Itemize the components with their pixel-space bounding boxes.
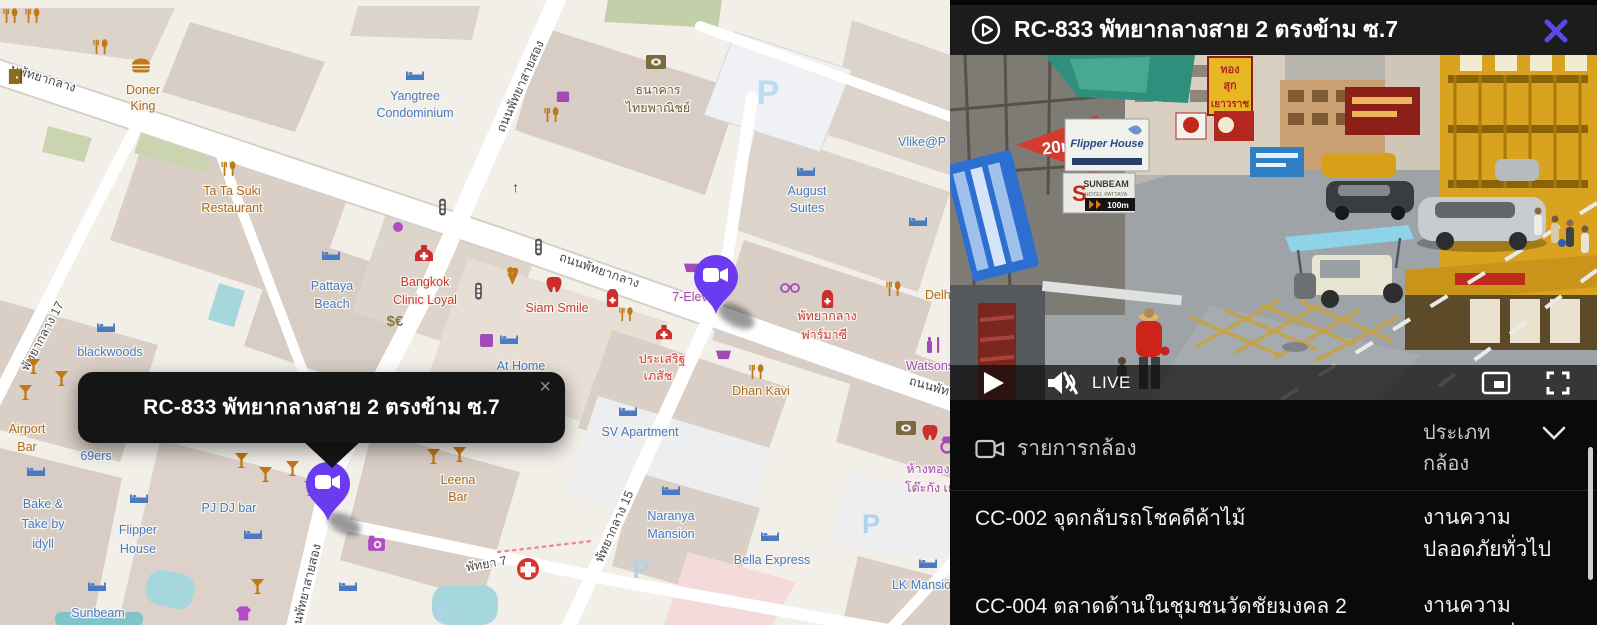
svg-text:สุก: สุก bbox=[1223, 80, 1237, 93]
svg-text:Bella Express: Bella Express bbox=[734, 553, 810, 567]
traffic-light-icon bbox=[535, 239, 542, 256]
chevron-down-icon[interactable] bbox=[1541, 424, 1567, 442]
svg-text:Flipper House: Flipper House bbox=[1070, 138, 1143, 150]
vehicle-car bbox=[1495, 159, 1539, 181]
svg-text:HOTEL PATTAYA: HOTEL PATTAYA bbox=[1085, 192, 1128, 198]
popup-close-icon[interactable]: × bbox=[539, 377, 551, 397]
shop-icon bbox=[480, 334, 493, 347]
svg-text:Doner: Doner bbox=[126, 83, 160, 97]
svg-text:Beach: Beach bbox=[314, 297, 349, 311]
svg-text:Condominium: Condominium bbox=[376, 106, 453, 120]
pharmacy-icon bbox=[607, 289, 618, 307]
mute-button[interactable] bbox=[1044, 369, 1078, 397]
svg-text:เภสัช: เภสัช bbox=[644, 369, 673, 383]
play-circle-icon bbox=[970, 14, 1002, 46]
svg-text:ธนาคาร: ธนาคาร bbox=[635, 83, 681, 97]
svg-text:Leena: Leena bbox=[441, 473, 476, 487]
panel-title: RC-833 พัทยากลางสาย 2 ตรงข้าม ซ.7 bbox=[1014, 12, 1398, 48]
svg-text:House: House bbox=[120, 542, 156, 556]
svg-text:โต๊ะกัง เย: โต๊ะกัง เย bbox=[905, 480, 950, 495]
app-window: นพัทยากลาง ถนนพัทยากลาง ถนนพัท ถนนพัทยาส… bbox=[0, 0, 1597, 625]
svg-text:69ers: 69ers bbox=[80, 449, 111, 463]
svg-text:P: P bbox=[757, 74, 780, 112]
svg-text:Vlike@P: Vlike@P bbox=[898, 135, 946, 149]
gold-shop-sign: ทอง สุก เยาวราช bbox=[1208, 57, 1252, 115]
svg-text:Bar: Bar bbox=[17, 440, 36, 454]
flipper-house-sign: Flipper House bbox=[1065, 119, 1149, 171]
svg-text:Bangkok: Bangkok bbox=[401, 275, 450, 289]
camera-list-header: รายการกล้อง ประเภท กล้อง bbox=[975, 418, 1575, 465]
svg-text:Dhan Kavi: Dhan Kavi bbox=[732, 384, 790, 398]
svg-text:At Home: At Home bbox=[497, 359, 546, 373]
svg-text:100m: 100m bbox=[1107, 200, 1129, 210]
svg-text:Airport: Airport bbox=[9, 422, 46, 436]
poi-dot-icon bbox=[393, 222, 403, 232]
svg-text:Siam Smile: Siam Smile bbox=[525, 301, 588, 315]
sunbeam-sign: S SUNBEAM HOTEL PATTAYA 100m bbox=[1063, 173, 1135, 213]
scrollbar[interactable] bbox=[1588, 447, 1593, 580]
svg-text:Sunbeam: Sunbeam bbox=[71, 606, 125, 620]
map-popup-title: RC-833 พัทยากลางสาย 2 ตรงข้าม ซ.7 bbox=[113, 391, 530, 424]
oneway-arrow-icon: ↑ bbox=[512, 179, 519, 195]
camera-row-name[interactable]: CC-004 ตลาดด้านในชุมชนวัดชัยมงคล 2 bbox=[975, 590, 1405, 623]
door-icon bbox=[9, 69, 22, 84]
panel-header: RC-833 พัทยากลางสาย 2 ตรงข้าม ซ.7 bbox=[950, 0, 1597, 55]
svg-text:P: P bbox=[862, 509, 880, 539]
live-camera-video[interactable]: 20m. Flipper House S SUNBEAM HOTEL PATTA… bbox=[950, 55, 1597, 400]
svg-text:LK Mansion: LK Mansion bbox=[892, 578, 950, 592]
map-popup-pointer bbox=[303, 441, 361, 468]
svg-text:ประเสริฐ: ประเสริฐ bbox=[639, 352, 686, 366]
pharmacy-icon bbox=[822, 290, 833, 308]
svg-text:Naranya: Naranya bbox=[647, 509, 694, 523]
svg-text:PJ DJ bar: PJ DJ bar bbox=[202, 501, 257, 515]
svg-text:P: P bbox=[436, 601, 451, 625]
svg-text:Clinic Loyal: Clinic Loyal bbox=[393, 293, 457, 307]
svg-text:blackwoods: blackwoods bbox=[77, 345, 142, 359]
svg-text:P: P bbox=[633, 556, 650, 584]
svg-text:Watsons: Watsons bbox=[906, 359, 950, 373]
type-column-header[interactable]: ประเภท กล้อง bbox=[1423, 418, 1553, 480]
fullscreen-button[interactable] bbox=[1545, 370, 1571, 396]
live-badge: LIVE bbox=[1092, 373, 1131, 393]
svg-text:Suites: Suites bbox=[790, 201, 825, 215]
svg-text:Ta Ta Suki: Ta Ta Suki bbox=[203, 184, 260, 198]
svg-text:King: King bbox=[130, 99, 155, 113]
hospital-icon bbox=[517, 558, 539, 580]
svg-text:Bar: Bar bbox=[448, 490, 467, 504]
svg-text:SV Apartment: SV Apartment bbox=[601, 425, 679, 439]
traffic-light-icon bbox=[439, 199, 446, 216]
map-canvas[interactable]: นพัทยากลาง ถนนพัทยากลาง ถนนพัท ถนนพัทยาส… bbox=[0, 0, 950, 625]
camera-list-title: รายการกล้อง bbox=[1017, 432, 1137, 465]
svg-text:Mansion: Mansion bbox=[647, 527, 694, 541]
svg-text:ไทยพาณิชย์: ไทยพาณิชย์ bbox=[625, 101, 691, 115]
camera-panel: RC-833 พัทยากลางสาย 2 ตรงข้าม ซ.7 bbox=[950, 0, 1597, 625]
traffic-light-icon bbox=[475, 283, 482, 300]
video-frame: 20m. Flipper House S SUNBEAM HOTEL PATTA… bbox=[950, 55, 1597, 400]
pip-button[interactable] bbox=[1481, 371, 1511, 395]
svg-text:Bake &: Bake & bbox=[23, 497, 64, 511]
list-divider bbox=[950, 490, 1597, 491]
video-camera-icon bbox=[975, 438, 1005, 460]
svg-text:พัทยากลาง: พัทยากลาง bbox=[797, 309, 856, 323]
close-panel-icon[interactable] bbox=[1543, 18, 1569, 44]
svg-text:August: August bbox=[788, 184, 827, 198]
svg-text:ฟาร์มาซี: ฟาร์มาซี bbox=[801, 328, 847, 342]
video-controls: LIVE bbox=[950, 365, 1597, 400]
vehicle-suv bbox=[1417, 197, 1547, 252]
svg-text:SUNBEAM: SUNBEAM bbox=[1083, 179, 1129, 189]
svg-text:ทอง: ทอง bbox=[1220, 64, 1239, 76]
svg-text:Restaurant: Restaurant bbox=[201, 201, 263, 215]
vehicle-truck bbox=[1322, 153, 1396, 177]
camera-row-name[interactable]: CC-002 จุดกลับรถโชคดีค้าไม้ bbox=[975, 502, 1405, 535]
svg-text:Take by: Take by bbox=[21, 517, 65, 531]
bank-icon bbox=[646, 55, 666, 69]
svg-text:Flipper: Flipper bbox=[119, 523, 157, 537]
map-popup: RC-833 พัทยากลางสาย 2 ตรงข้าม ซ.7 × bbox=[78, 372, 565, 443]
camera-list: รายการกล้อง ประเภท กล้อง CC-002 จุดกลับร… bbox=[950, 400, 1597, 625]
exchange-icon: $€ bbox=[387, 313, 404, 330]
bank-icon bbox=[896, 421, 916, 435]
svg-text:เยาวราช: เยาวราช bbox=[1211, 99, 1249, 110]
play-button[interactable] bbox=[972, 370, 1012, 396]
svg-text:ห้างทอง: ห้างทอง bbox=[906, 462, 949, 476]
svg-text:Pattaya: Pattaya bbox=[311, 279, 353, 293]
svg-text:Delhi D: Delhi D bbox=[925, 288, 950, 302]
camera-row-type: งานความ ปลอดภัยทั่วไป bbox=[1423, 502, 1593, 566]
svg-text:idyll: idyll bbox=[32, 537, 54, 551]
map-svg: นพัทยากลาง ถนนพัทยากลาง ถนนพัท ถนนพัทยาส… bbox=[0, 0, 950, 625]
camera-row-type: งานความ ปลอดภัยทั่วไป bbox=[1423, 590, 1593, 625]
svg-text:Yangtree: Yangtree bbox=[390, 89, 440, 103]
